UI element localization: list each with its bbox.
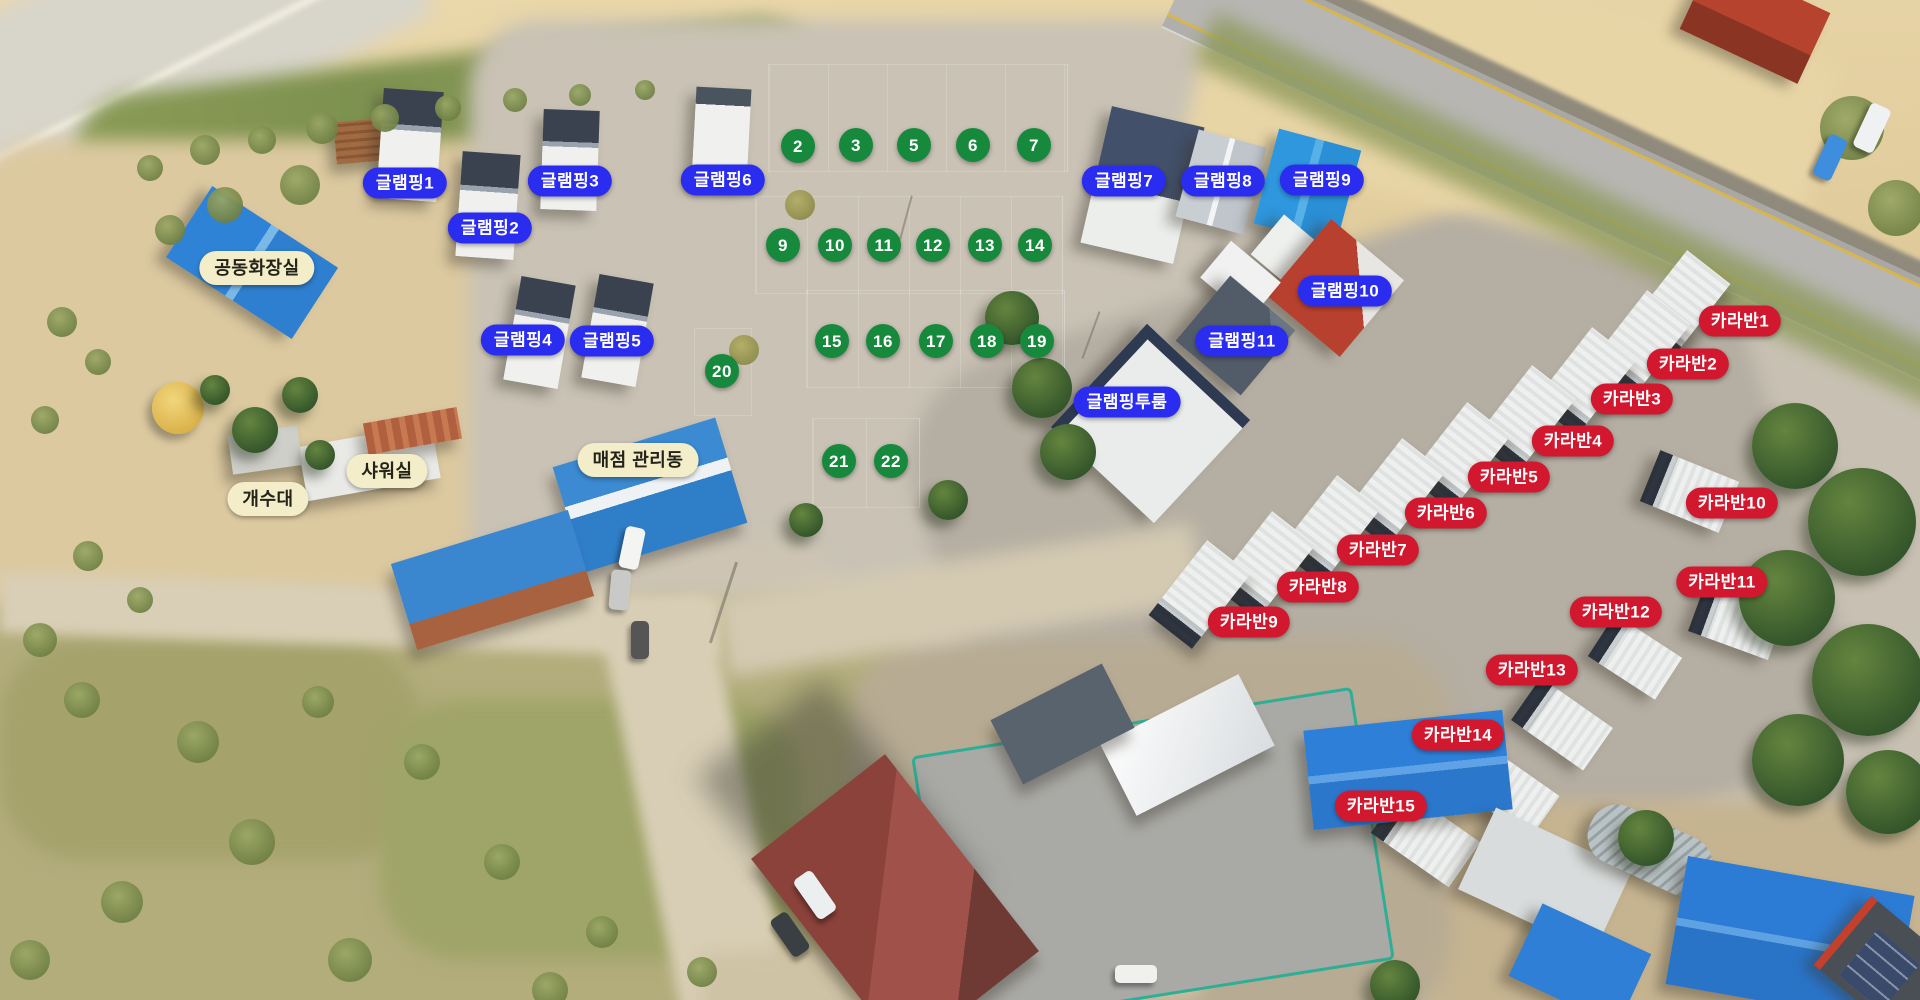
site-number-marker[interactable]: 9 [766,228,800,262]
glamping-label[interactable]: 글램핑4 [481,325,565,356]
caravan-label[interactable]: 카라반13 [1486,655,1578,686]
glamping-label[interactable]: 글램핑1 [363,168,447,199]
site-number-marker[interactable]: 10 [818,228,852,262]
caravan-label[interactable]: 카라반15 [1335,791,1427,822]
caravan-label[interactable]: 카라반3 [1591,384,1673,415]
glamping-label[interactable]: 글램핑5 [570,326,654,357]
glamping-label[interactable]: 글램핑6 [681,165,765,196]
site-number-marker[interactable]: 6 [956,128,990,162]
caravan-label[interactable]: 카라반7 [1337,535,1419,566]
site-number-marker[interactable]: 16 [866,324,900,358]
site-number-marker[interactable]: 19 [1020,324,1054,358]
caravan-label[interactable]: 카라반2 [1647,349,1729,380]
glamping-label[interactable]: 글램핑2 [448,213,532,244]
glamping-label[interactable]: 글램핑9 [1280,165,1364,196]
campground-aerial-map: 글램핑1글램핑2글램핑3글램핑4글램핑5글램핑6글램핑7글램핑8글램핑9글램핑1… [0,0,1920,1000]
site-number-marker[interactable]: 2 [781,129,815,163]
caravan-label[interactable]: 카라반14 [1412,720,1504,751]
site-number-marker[interactable]: 17 [919,324,953,358]
site-number-marker[interactable]: 5 [897,128,931,162]
site-number-marker[interactable]: 12 [916,228,950,262]
facility-label[interactable]: 매점 관리동 [578,443,699,477]
site-number-marker[interactable]: 3 [839,128,873,162]
caravan-label[interactable]: 카라반4 [1532,426,1614,457]
caravan-label[interactable]: 카라반12 [1570,597,1662,628]
caravan-label[interactable]: 카라반1 [1699,306,1781,337]
caravan-label[interactable]: 카라반10 [1686,488,1778,519]
site-number-marker[interactable]: 7 [1017,128,1051,162]
site-number-marker[interactable]: 13 [968,228,1002,262]
caravan-label[interactable]: 카라반11 [1676,567,1767,598]
glamping-label[interactable]: 글램핑10 [1298,276,1392,307]
site-number-marker[interactable]: 21 [822,444,856,478]
site-number-marker[interactable]: 11 [867,228,901,262]
facility-label[interactable]: 공동화장실 [199,251,314,285]
site-number-marker[interactable]: 14 [1018,228,1052,262]
marker-layer: 글램핑1글램핑2글램핑3글램핑4글램핑5글램핑6글램핑7글램핑8글램핑9글램핑1… [0,0,1920,1000]
facility-label[interactable]: 개수대 [227,482,308,516]
site-number-marker[interactable]: 20 [705,354,739,388]
caravan-label[interactable]: 카라반8 [1277,572,1359,603]
glamping-label[interactable]: 글램핑7 [1082,166,1166,197]
glamping-label[interactable]: 글램핑투룸 [1074,387,1181,418]
caravan-label[interactable]: 카라반5 [1468,462,1550,493]
facility-label[interactable]: 샤워실 [346,454,427,488]
glamping-label[interactable]: 글램핑3 [528,166,612,197]
glamping-label[interactable]: 글램핑8 [1181,166,1265,197]
site-number-marker[interactable]: 22 [874,444,908,478]
caravan-label[interactable]: 카라반9 [1208,607,1290,638]
site-number-marker[interactable]: 15 [815,324,849,358]
site-number-marker[interactable]: 18 [970,324,1004,358]
glamping-label[interactable]: 글램핑11 [1195,326,1288,357]
caravan-label[interactable]: 카라반6 [1405,498,1487,529]
